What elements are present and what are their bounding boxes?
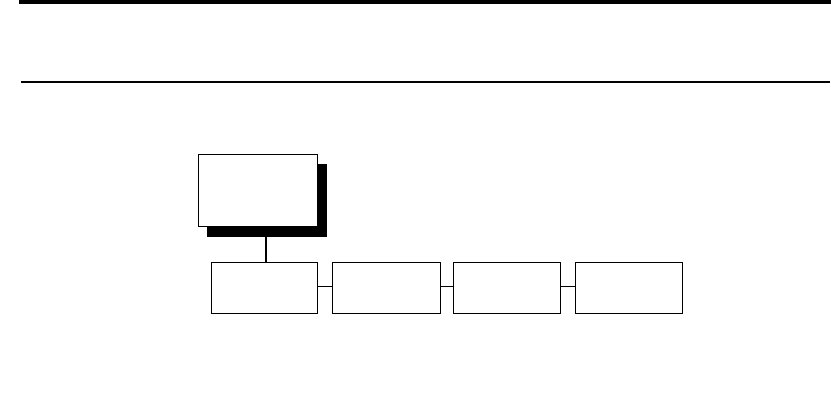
page [0, 0, 831, 403]
root-menu-box [198, 154, 318, 227]
child-menu-box-4 [575, 262, 683, 314]
menu-tree-diagram [0, 0, 831, 403]
connector-line-2-3 [441, 286, 453, 288]
connector-line-1-2 [318, 286, 332, 288]
child-menu-box-2 [332, 262, 441, 314]
root-to-children-connector-line [265, 226, 267, 262]
child-menu-box-1 [211, 262, 318, 314]
connector-line-3-4 [561, 286, 575, 288]
child-menu-box-3 [453, 262, 561, 314]
